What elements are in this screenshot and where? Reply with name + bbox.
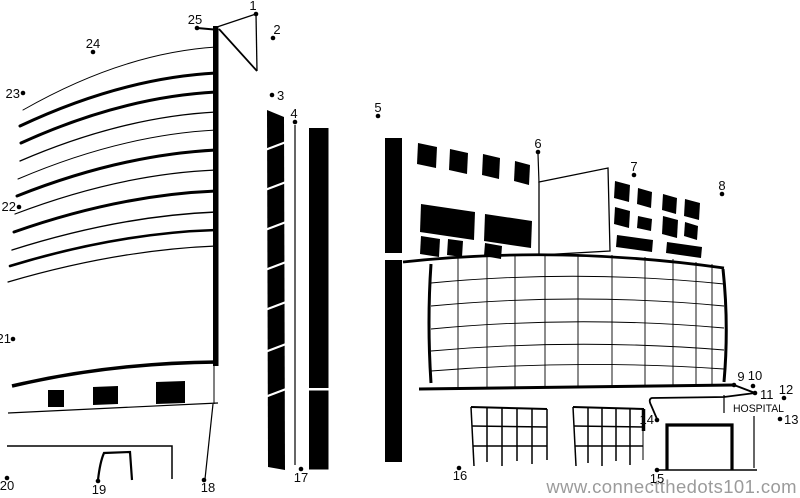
dot-21[interactable] xyxy=(11,337,16,342)
hospital-line-art: HOSPITAL www.connectthedots101.com www.c… xyxy=(0,0,800,498)
dot-label-22: 22 xyxy=(2,199,16,214)
dot-label-14: 14 xyxy=(640,412,654,427)
dot-label-1: 1 xyxy=(249,0,256,13)
dot-11[interactable] xyxy=(753,391,758,396)
dot-label-3: 3 xyxy=(277,88,284,103)
entrance-doorway xyxy=(667,425,732,470)
dot-9[interactable] xyxy=(732,383,737,388)
rooftop-tower xyxy=(538,154,610,255)
dot-label-19: 19 xyxy=(92,482,106,497)
dot-14[interactable] xyxy=(655,418,660,423)
dot-label-24: 24 xyxy=(86,36,100,51)
dot-label-13: 13 xyxy=(784,412,798,427)
dot-label-17: 17 xyxy=(294,470,308,485)
dark-column-2 xyxy=(309,128,329,470)
dot-3[interactable] xyxy=(270,93,275,98)
dot-22[interactable] xyxy=(17,205,22,210)
dot-label-2: 2 xyxy=(273,22,280,37)
dot-23[interactable] xyxy=(21,91,26,96)
dot-label-16: 16 xyxy=(453,468,467,483)
dot-label-8: 8 xyxy=(718,178,725,193)
ground-window-grid-right xyxy=(573,407,644,466)
entrance-door-outline xyxy=(98,452,132,480)
dot-10[interactable] xyxy=(751,384,756,389)
left-tower-curves xyxy=(8,47,216,282)
dot-label-4: 4 xyxy=(290,106,297,121)
dot-label-9: 9 xyxy=(737,369,744,384)
dot-13[interactable] xyxy=(778,417,783,422)
dot-label-21: 21 xyxy=(0,331,11,346)
left-tower-base xyxy=(7,362,218,480)
dot-label-7: 7 xyxy=(630,159,637,174)
hospital-sign: HOSPITAL xyxy=(733,403,784,415)
upper-windows-left xyxy=(417,143,532,259)
base-window xyxy=(48,390,64,407)
dot-label-11: 11 xyxy=(760,387,774,402)
dot-label-5: 5 xyxy=(374,100,381,115)
striped-column xyxy=(265,110,294,470)
dot-label-10: 10 xyxy=(748,368,762,383)
glass-atrium xyxy=(403,254,734,389)
dot-label-20: 20 xyxy=(0,478,14,493)
dot-label-15: 15 xyxy=(650,471,664,486)
dot-label-12: 12 xyxy=(779,382,793,397)
base-window xyxy=(156,381,185,404)
watermark: www.connectthedots101.com www.connectthe… xyxy=(545,476,798,498)
dark-column-3 xyxy=(385,138,402,462)
base-window xyxy=(93,386,118,405)
ground-window-grid-left xyxy=(471,407,547,466)
upper-windows-right xyxy=(614,181,702,258)
dot-to-dot-worksheet: HOSPITAL www.connectthedots101.com www.c… xyxy=(0,0,800,498)
dot-label-23: 23 xyxy=(6,86,20,101)
watermark-text: www.connectthedots101.com xyxy=(545,476,797,497)
dot-label-25: 25 xyxy=(188,12,202,27)
dot-label-18: 18 xyxy=(201,480,215,495)
dot-label-6: 6 xyxy=(534,136,541,151)
